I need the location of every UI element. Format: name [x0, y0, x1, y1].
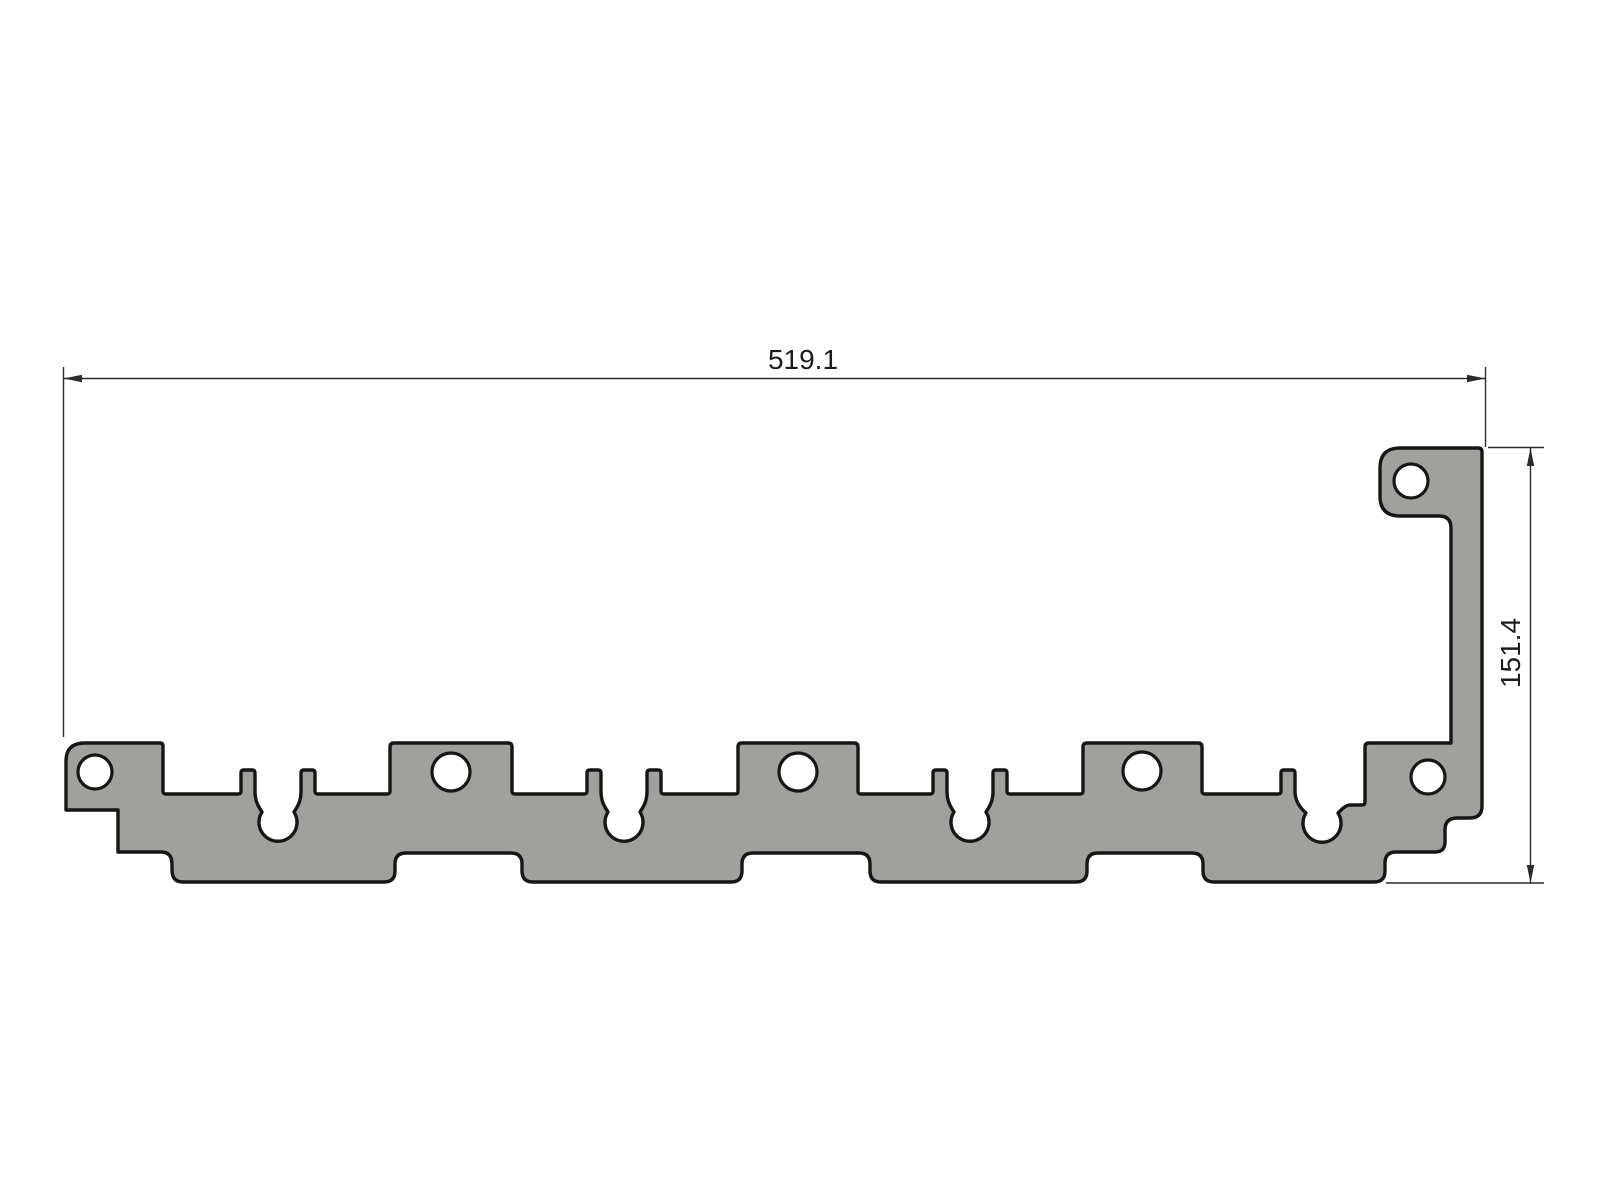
arrowhead-left — [64, 375, 83, 382]
arrowhead-top — [1527, 448, 1534, 466]
height-dimension-label: 151.4 — [1495, 618, 1526, 688]
arrowhead-right — [1467, 375, 1486, 382]
arrowhead-bottom — [1527, 865, 1534, 883]
horizontal-dimension: 519.1 — [64, 344, 1486, 737]
width-dimension-label: 519.1 — [768, 344, 838, 375]
bolt-hole — [1394, 464, 1428, 498]
bolt-hole — [432, 753, 470, 791]
bolt-hole — [1123, 752, 1161, 790]
bolt-hole — [1411, 760, 1445, 794]
bolt-hole — [78, 755, 112, 789]
technical-drawing: 519.1 151.4 — [0, 0, 1600, 1200]
bolt-hole — [779, 753, 817, 791]
part-outline — [66, 448, 1482, 882]
